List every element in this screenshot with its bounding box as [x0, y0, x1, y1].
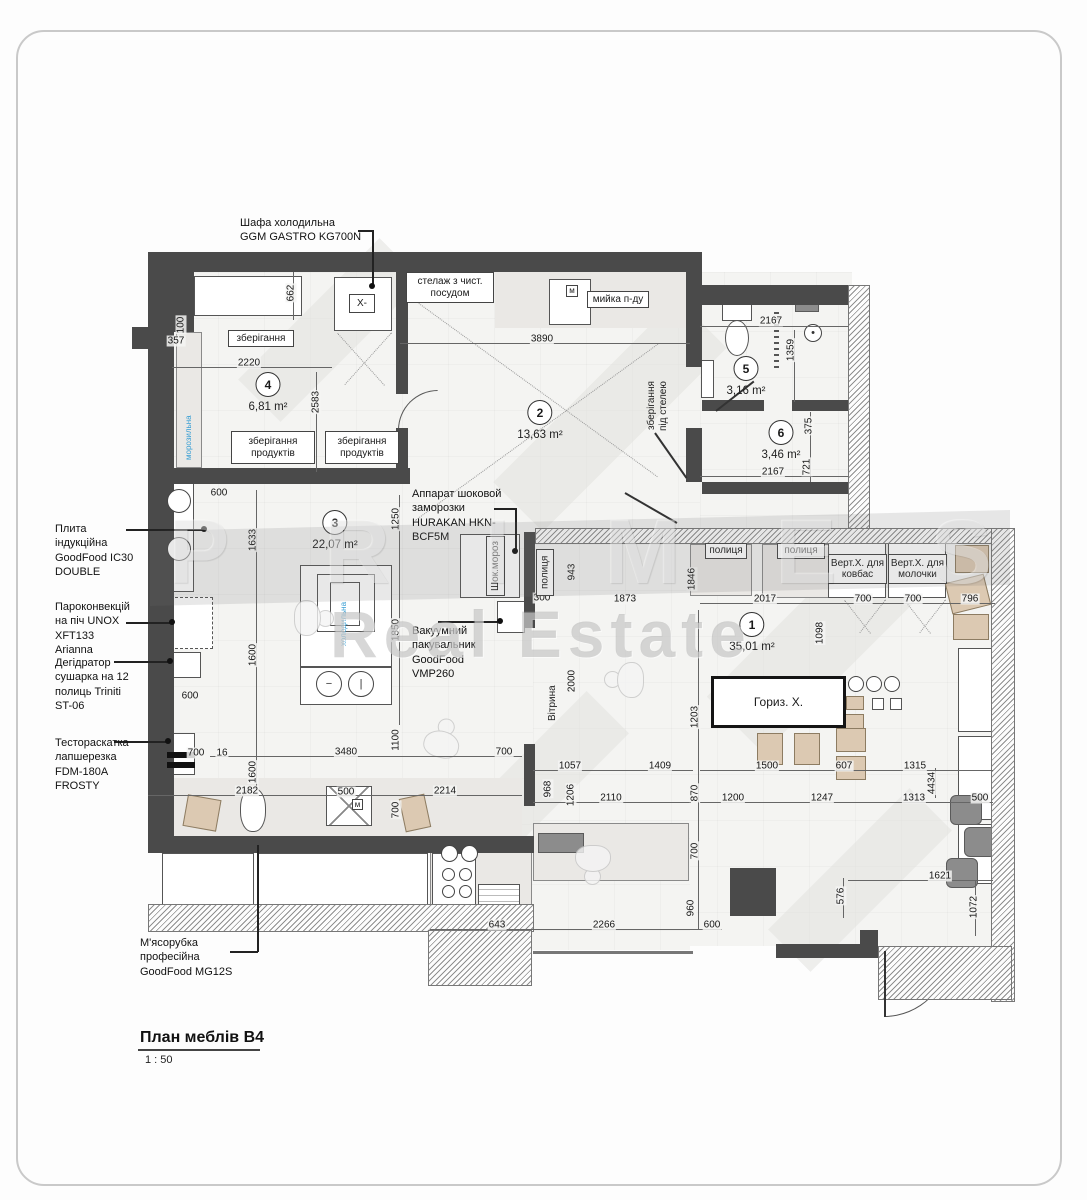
burner-4: [459, 868, 472, 881]
dimension-label: 2214: [433, 786, 457, 797]
dimension-label: 1315: [903, 761, 927, 772]
label-clean-dish-rack: стелаж з чист. посудом: [406, 272, 494, 303]
dimension-label: 1359: [786, 338, 797, 362]
watermark-primes: PRIMES: [168, 500, 992, 605]
label-ceiling-storage: зберігання під стелею: [646, 358, 678, 454]
dimension-label: 500: [337, 787, 356, 798]
dimension-label: 700: [495, 747, 514, 758]
hob-burner-1: −: [316, 671, 342, 697]
hatch-wall-right: [991, 528, 1015, 1002]
leader-line: [230, 951, 258, 953]
dimension-label: 1313: [902, 793, 926, 804]
leader-dot: [169, 619, 175, 625]
room-tag-2: 213,63 m²: [517, 400, 562, 441]
dimension-label: 2583: [311, 390, 322, 414]
room-tag-6: 63,46 m²: [762, 420, 801, 461]
dimension-label: 700: [391, 801, 402, 820]
dimension-label: 2167: [761, 467, 785, 478]
wall-topright: [686, 285, 862, 305]
burner-3: [442, 868, 455, 881]
dimension-label: 2220: [237, 358, 261, 369]
dimension-label: 1203: [690, 705, 701, 729]
wall-room6-bottom: [702, 482, 862, 494]
dimension-label: 600: [181, 691, 200, 702]
burner-6: [459, 885, 472, 898]
window-1: [162, 853, 254, 905]
dimension-label: 1098: [815, 621, 826, 645]
dimension-label: 576: [836, 887, 847, 906]
room-number-bubble: 2: [527, 400, 552, 425]
dimension-label: 2167: [759, 316, 783, 327]
dimension-label: 16: [215, 748, 228, 759]
title-underline: [138, 1049, 260, 1051]
bar-item-3: [890, 698, 902, 710]
bar-item-1: [846, 696, 864, 710]
wall-top: [148, 252, 702, 272]
dimension-label: 2110: [599, 793, 623, 804]
dim-line: [316, 372, 317, 472]
dimension-label: 600: [703, 920, 722, 931]
dimension-label: 960: [686, 899, 697, 918]
wall-room4-bottom: [148, 468, 410, 484]
prep-table-lower: [300, 667, 392, 705]
callout-induction-stove: Плита індукційна GoodFood IC30 DOUBLE: [55, 522, 133, 579]
stool-r3: [953, 614, 989, 640]
hatch-wall-bottom-left: [148, 904, 534, 932]
bar-ring-3: [884, 676, 900, 692]
label-m-marker-2: м: [352, 799, 363, 810]
hatch-wall-bottom-right: [878, 946, 1012, 1000]
dimension-label: 2266: [592, 920, 616, 931]
washbasin-cabinet: [701, 360, 714, 398]
dimension-label: 700: [187, 748, 206, 759]
hatch-wall-right-wc: [848, 285, 870, 530]
callout-dough-sheeter: Тестораскатка лапшерезка FDM-180A FROSTY: [55, 736, 129, 793]
callout-meat-grinder: М'ясорубка професійна GoodFood MG12S: [140, 936, 232, 979]
wall-wc-left-a: [686, 305, 702, 367]
room-tag-4: 46,81 m²: [249, 372, 288, 413]
bar-item-2: [872, 698, 884, 710]
label-fridge-x: X-: [349, 294, 375, 313]
label-horizontal-fridge: Гориз. Х.: [711, 676, 846, 728]
leader-line: [372, 230, 374, 286]
stool-c3: [836, 728, 866, 752]
plan-scale: 1 : 50: [145, 1054, 173, 1066]
dimension-label: 662: [286, 284, 297, 303]
leader-dot: [165, 738, 171, 744]
dimension-label: 700: [690, 842, 701, 861]
dimension-label: 607: [835, 761, 854, 772]
dimension-label: 721: [802, 458, 813, 477]
dimension-label: 375: [804, 417, 815, 436]
dimension-label: 2000: [567, 669, 578, 693]
bar-ring-1: [848, 676, 864, 692]
wall-wc-mid-a: [702, 400, 764, 411]
wall-bottom-b: [860, 930, 878, 958]
dim-line: [148, 795, 522, 796]
hob-burner-2: |: [348, 671, 374, 697]
dough-sheeter-bar-2: [167, 762, 195, 768]
room-area-label: 3,16 m²: [727, 385, 766, 397]
dimension-label: 1057: [558, 761, 582, 772]
dimension-label: 100: [176, 316, 187, 335]
toilet-tank: [722, 303, 752, 321]
dimension-label: 357: [167, 336, 186, 347]
room-area-label: 13,63 m²: [517, 429, 562, 441]
dimension-label: 4434: [927, 771, 938, 795]
room-area-label: 6,81 m²: [249, 401, 288, 413]
callout-convection-oven: Пароконвекцій на піч UNOX XFT133 Arianna: [55, 600, 130, 657]
dimension-label: 500: [971, 793, 990, 804]
floor-plan-page: • − |: [0, 0, 1087, 1200]
dimension-label: 3480: [334, 747, 358, 758]
leader-dot: [369, 283, 375, 289]
label-food-storage-1: зберігання продуктів: [231, 431, 315, 464]
bar-ring-2: [866, 676, 882, 692]
label-sink: мийка п-ду: [587, 291, 649, 308]
plan-title: План меблів В4: [140, 1029, 264, 1047]
hatch-wall-bottom-block: [428, 930, 532, 986]
dimension-label: 968: [543, 780, 554, 799]
leader-line: [257, 845, 259, 952]
dim-line: [848, 880, 993, 881]
window-2: [258, 853, 428, 905]
dimension-label: 3890: [530, 334, 554, 345]
burner-1: [441, 845, 458, 862]
dimension-label: 1600: [248, 760, 259, 784]
label-freezer-blue: морозильна: [184, 386, 199, 460]
dimension-label: 1200: [721, 793, 745, 804]
room-number-bubble: 6: [769, 420, 794, 445]
label-m-marker-1: м: [566, 285, 578, 297]
dimension-label: 1600: [248, 643, 259, 667]
dimension-label: 1247: [810, 793, 834, 804]
dimension-label: 1100: [391, 728, 402, 752]
window-sliding: [533, 951, 693, 954]
callout-refrigerator-cabinet: Шафа холодильна GGM GASTRO KG700N: [240, 216, 361, 245]
label-storage: зберігання: [228, 330, 294, 347]
dimension-label: 1621: [928, 871, 952, 882]
watermark-real-estate: Real Estate: [330, 596, 752, 672]
person-figure: [575, 845, 611, 885]
dimension-label: 1206: [566, 783, 577, 807]
dimension-label: 1500: [755, 761, 779, 772]
column: [730, 868, 776, 916]
entry-door-leaf: [884, 951, 886, 1017]
wall-bottom-a: [776, 944, 862, 958]
burner-5: [442, 885, 455, 898]
dimension-label: 870: [690, 784, 701, 803]
dim-line: [430, 929, 722, 930]
dimension-label: 643: [488, 920, 507, 931]
room-number-bubble: 4: [256, 372, 281, 397]
room-number-bubble: 5: [734, 356, 759, 381]
dimension-label: 1409: [648, 761, 672, 772]
dimension-label: 600: [210, 488, 229, 499]
wall-wc-left-b: [686, 428, 702, 482]
person-figure: [294, 600, 334, 636]
dimension-label: 1072: [969, 895, 980, 919]
leader-line: [126, 622, 172, 624]
label-vitrine: Вітрина: [547, 684, 563, 722]
stool-c2: [794, 733, 820, 765]
leader-dot: [167, 658, 173, 664]
room-area-label: 3,46 m²: [762, 449, 801, 461]
room-tag-5: 53,16 m²: [727, 356, 766, 397]
crate-1: [182, 794, 221, 831]
label-food-storage-2: зберігання продуктів: [325, 431, 399, 464]
callout-dehydrator: Дегідратор сушарка на 12 полиць Triniti …: [55, 656, 129, 713]
burner-2: [461, 845, 478, 862]
wall-center-b: [524, 744, 535, 806]
dimension-label: 2182: [235, 786, 259, 797]
window-seat-1: [958, 648, 994, 732]
